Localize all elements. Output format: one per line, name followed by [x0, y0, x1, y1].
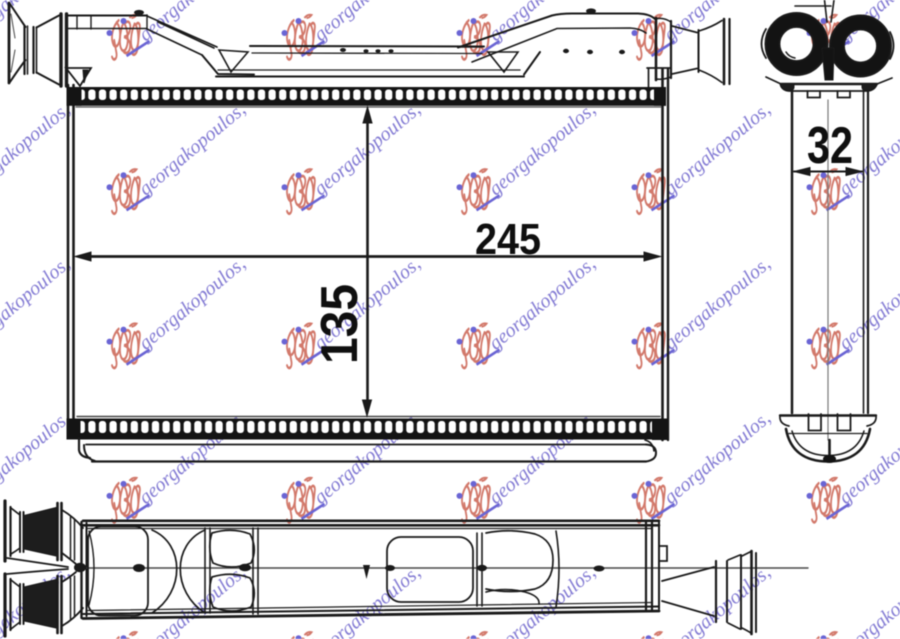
svg-text:135: 135 — [311, 284, 369, 364]
svg-text:32: 32 — [807, 117, 853, 175]
svg-text:245: 245 — [475, 215, 541, 264]
